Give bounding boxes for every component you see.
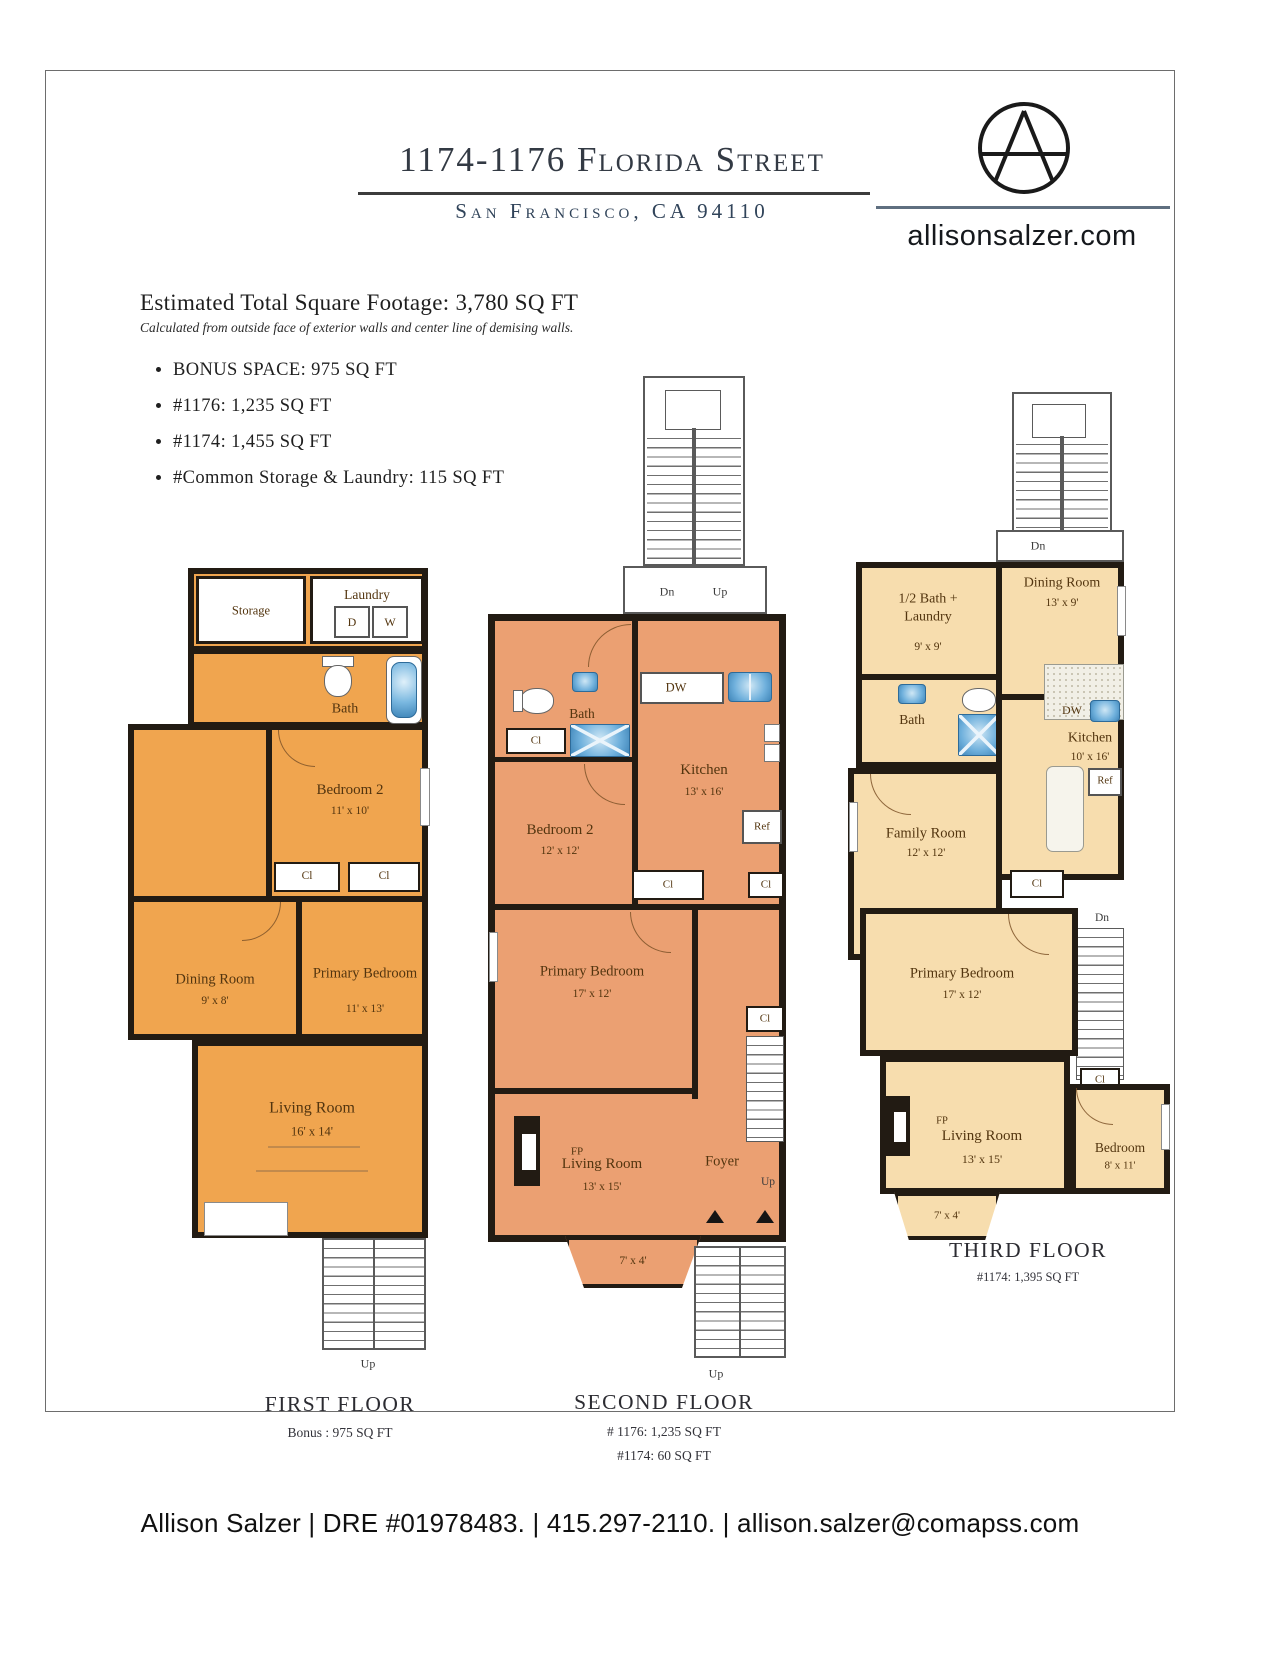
floor2-tower-landing [665,390,721,430]
property-address-title: 1174-1176 Florida Street [399,140,825,180]
floor3-dn2-label: Dn [1095,912,1109,924]
floor2-shower-icon [570,724,630,757]
floor2-dn-label: Dn [660,585,675,600]
floor1-dining-label: Dining Room [175,971,254,988]
floor2-bath-closet-label: Cl [531,734,541,747]
floor1-closet-2-label: Cl [379,870,390,884]
sqft-bullet-common: #Common Storage & Laundry: 115 SQ FT [173,468,504,489]
floor2-interior-stairs [746,1036,784,1142]
floor2-living-dims: 13' x 15' [583,1181,622,1195]
floor1-living-dims: 16' x 14' [291,1125,333,1140]
floor2-tower-divider [692,428,696,564]
third-floor-plan: Dn 1/2 Bath + Laundry 9' x 9' Dining Roo… [840,372,1175,1272]
sqft-bullet-list: BONUS SPACE: 975 SQ FT #1176: 1,235 SQ F… [155,360,504,504]
floor1-wall-dining [296,896,302,1040]
floor1-window-right [420,768,430,826]
floor1-window-bottom [204,1202,288,1236]
floor3-stair-base [996,530,1124,562]
floor1-primary-dims: 11' x 13' [346,1003,384,1017]
floor3-family-label: Family Room [886,825,966,842]
floor1-washer-label: W [384,615,395,629]
third-floor-note: #1174: 1,395 SQ FT [977,1270,1079,1285]
floor2-entry-marker-1 [706,1210,724,1223]
floor3-primary-dims: 17' x 12' [943,989,982,1003]
floor1-stairs-center-rail [373,1240,375,1348]
floor1-faded-mark-1 [268,1146,360,1148]
floor2-bay-dims: 7' x 4' [619,1255,646,1269]
floor2-dw-label: DW [666,681,687,696]
floor3-ref-label: Ref [1097,776,1112,789]
floor3-kitchen-sink-icon [1090,700,1120,722]
floor2-stair-base [623,566,767,614]
floor3-tower-divider [1060,436,1064,530]
floor3-dn-label: Dn [1031,539,1046,554]
floor1-bath-label: Bath [332,702,358,719]
brand-underline [876,206,1170,209]
second-floor-note-1174: #1174: 60 SQ FT [617,1448,711,1464]
floor2-foyer-up-label: Up [761,1176,775,1188]
floor2-primary-label: Primary Bedroom [540,963,644,980]
floor2-closet-b-label: Cl [761,878,771,891]
floor1-living-label: Living Room [269,1098,355,1117]
shower-x-icon [571,725,629,756]
floor2-toilet-icon [520,688,554,714]
floor3-bath-label: Bath [899,712,925,728]
floor3-kitchen-label: Kitchen [1068,731,1112,748]
second-floor-note-1176: # 1176: 1,235 SQ FT [607,1424,721,1440]
floor3-tower-landing [1032,404,1086,438]
floor3-dw-label: DW [1062,703,1082,717]
floor2-wall-living-top [488,1088,698,1094]
second-floor-title: SECOND FLOOR [574,1390,754,1415]
floor2-bedroom2-label: Bedroom 2 [526,821,593,839]
floor3-halfbath-label-1: 1/2 Bath + [898,592,957,609]
floor3-window-bedroom [1161,1104,1170,1150]
floor3-dining-dims: 13' x 9' [1046,597,1079,611]
floor1-faded-mark-2 [256,1170,368,1172]
floor3-kitchen-dims: 10' x 16' [1071,751,1110,765]
floor3-window-dining [1117,586,1126,636]
sqft-bullet-bonus: BONUS SPACE: 975 SQ FT [173,360,504,381]
floor2-ref-label: Ref [754,820,770,833]
floor3-bedroom-label: Bedroom [1095,1140,1145,1156]
floor2-bath-sink-icon [572,672,598,692]
first-floor-note: Bonus : 975 SQ FT [287,1425,392,1441]
floor2-window-left [489,932,498,982]
brand-logo [976,100,1072,196]
floor2-kitchen-label: Kitchen [680,761,727,779]
floor3-fireplace-inner [894,1112,906,1142]
floor2-up-label: Up [713,585,728,600]
floor1-stairs-up-label: Up [361,1357,376,1372]
brand-website[interactable]: allisonsalzer.com [907,220,1136,253]
floor1-dining-dims: 9' x 8' [201,995,228,1009]
floor2-foyer-label: Foyer [705,1153,739,1170]
floor3-dining-label: Dining Room [1024,576,1101,593]
floor2-closet-a-label: Cl [663,878,673,891]
agent-contact-line: Allison Salzer | DRE #01978483. | 415.29… [45,1508,1175,1539]
as-monogram-icon [976,100,1072,196]
floor3-halfbath-dims: 9' x 9' [914,641,941,655]
floor3-primary-label: Primary Bedroom [910,965,1014,982]
floor3-closet-kitchen-label: Cl [1032,877,1042,890]
sqft-summary-note: Calculated from outside face of exterior… [140,320,573,336]
floor2-sink-divider [749,674,751,700]
second-floor-plan: Dn Up Bath Cl Bedroom 2 12' x 12' DW Kit… [480,372,810,1392]
floor3-living-label: Living Room [942,1127,1022,1145]
floor2-primary-dims: 17' x 12' [573,988,612,1002]
floor3-bedroom-dims: 8' x 11' [1104,1159,1135,1172]
floor1-dryer-label: D [348,615,357,629]
floor1-laundry-label: Laundry [344,587,390,603]
floor2-stove-2 [764,744,780,762]
sqft-bullet-1176: #1176: 1,235 SQ FT [173,396,504,417]
floor1-bathtub-basin [391,662,417,718]
floor1-bedroom2-dims: 11' x 10' [331,805,369,819]
first-floor-plan: Storage Laundry D W Bath Bedroom 2 11' x… [100,562,445,1422]
floor1-primary-label: Primary Bedroom [310,965,420,982]
third-floor-title: THIRD FLOOR [949,1238,1107,1263]
floor3-bay-dims: 7' x 4' [934,1209,960,1222]
floor3-window-family [849,802,858,852]
floor1-wall-left-room [266,724,272,900]
floor2-fireplace-inner [522,1134,536,1170]
floor2-stove-1 [764,724,780,742]
floor3-down-stairs [1076,928,1124,1080]
title-underline [358,192,870,195]
floor2-toilet-tank [513,690,523,712]
floor3-kitchen-island [1046,766,1084,852]
floor1-toilet-icon [324,665,352,697]
floor2-entry-marker-2 [756,1210,774,1223]
floor2-wall-corridor [692,904,698,1099]
property-city-subtitle: San Francisco, CA 94110 [455,199,769,224]
shower-x-icon [959,715,999,755]
floor2-entry-stairs-rail [739,1248,741,1356]
floor3-family-dims: 12' x 12' [907,847,946,861]
floor2-bedroom2-dims: 12' x 12' [541,845,580,859]
flyer-page: 1174-1176 Florida Street San Francisco, … [0,0,1280,1656]
floor1-closet-1-label: Cl [302,870,313,884]
first-floor-title: FIRST FLOOR [265,1392,416,1417]
floor1-storage-label: Storage [232,604,270,619]
floor3-shower-icon [958,714,1000,756]
sqft-bullet-1174: #1174: 1,455 SQ FT [173,432,504,453]
floor2-kitchen-dims: 13' x 16' [685,786,724,800]
floor2-closet-c-label: Cl [760,1012,770,1025]
floor3-halfbath-label-2: Laundry [904,610,951,627]
floor3-bath-sink-icon [898,684,926,704]
sqft-summary-heading: Estimated Total Square Footage: 3,780 SQ… [140,290,578,316]
floor3-toilet-icon [962,688,996,712]
floor2-living-label: Living Room [562,1155,642,1173]
floor3-living-dims: 13' x 15' [962,1152,1002,1166]
floor2-wall-primary-top [488,904,786,910]
floor2-bath-label: Bath [569,706,595,722]
floor2-entry-up-label: Up [709,1367,724,1382]
floor1-bedroom2-label: Bedroom 2 [316,781,383,799]
